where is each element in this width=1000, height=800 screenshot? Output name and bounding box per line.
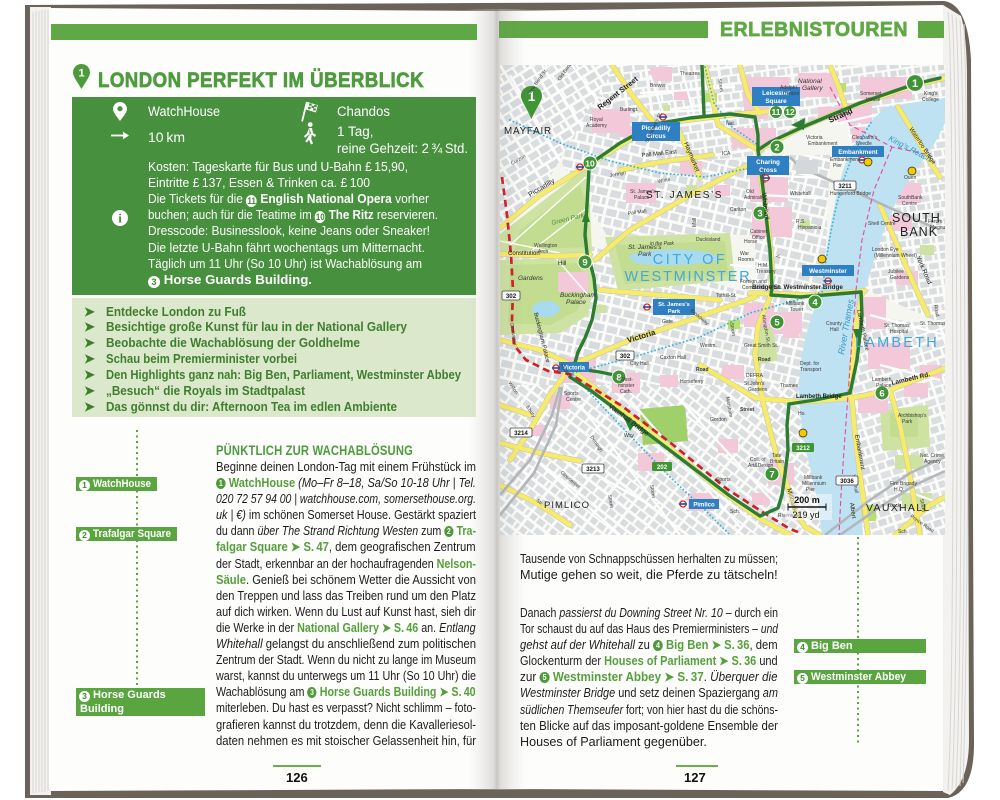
svg-text:Cath.: Cath.: [620, 389, 632, 395]
svg-text:Sports: Sports: [716, 477, 731, 483]
svg-text:Street: Street: [740, 407, 755, 413]
svg-text:Gardens: Gardens: [518, 275, 544, 282]
svg-text:Nat.: Nat.: [726, 121, 735, 127]
svg-text:Art&Design: Art&Design: [748, 463, 774, 469]
svg-text:Treasury: Treasury: [756, 269, 776, 275]
svg-text:3211: 3211: [838, 183, 852, 190]
svg-text:ST. JAMES’S: ST. JAMES’S: [646, 190, 723, 201]
svg-text:City Hall: City Hall: [630, 361, 649, 367]
svg-text:Gate: Gate: [662, 319, 673, 325]
svg-text:Brewer: Brewer: [650, 83, 666, 89]
svg-text:Tower: Tower: [790, 307, 804, 313]
svg-text:PIMLICO: PIMLICO: [544, 500, 590, 511]
svg-text:Carlton: Carlton: [730, 207, 746, 213]
svg-text:(Millennium Wheel): (Millennium Wheel): [874, 253, 917, 259]
svg-text:Savoy: Savoy: [838, 111, 852, 117]
svg-text:College: College: [922, 97, 939, 103]
svg-text:Charing: Charing: [756, 159, 780, 166]
svg-text:Square: Square: [765, 98, 787, 105]
svg-text:Great Smith St.: Great Smith St.: [744, 343, 778, 349]
svg-text:Pimlico: Pimlico: [693, 503, 715, 509]
svg-text:Gardens: Gardens: [748, 387, 768, 393]
svg-text:Way: Way: [624, 433, 634, 439]
svg-text:Rooms: Rooms: [738, 257, 754, 263]
svg-text:Ho.: Ho.: [798, 411, 806, 417]
svg-text:Academy: Academy: [586, 123, 607, 129]
svg-text:H.Q.: H.Q.: [894, 487, 904, 493]
svg-text:Magnum: Magnum: [930, 225, 945, 231]
svg-text:Ouen: Ouen: [904, 175, 916, 181]
svg-text:12: 12: [785, 107, 795, 117]
svg-text:Palace: Palace: [566, 299, 586, 306]
svg-text:Shell Centre: Shell Centre: [868, 221, 896, 227]
svg-text:Burlingt.: Burlingt.: [620, 107, 638, 113]
svg-text:Admiralty: Admiralty: [744, 195, 765, 201]
svg-text:St. James's: St. James's: [658, 302, 690, 308]
svg-text:National: National: [798, 78, 822, 85]
svg-text:Lambeth Bridge: Lambeth Bridge: [796, 394, 842, 400]
svg-text:Hall: Hall: [830, 327, 839, 333]
svg-text:200 m: 200 m: [794, 495, 820, 505]
svg-text:Sch.: Sch.: [898, 529, 908, 535]
svg-text:Office: Office: [752, 235, 765, 241]
svg-text:202: 202: [657, 464, 668, 471]
svg-text:Theatre: Theatre: [782, 91, 799, 97]
svg-text:Commonw. Office: Commonw. Office: [742, 285, 782, 291]
svg-text:219 yd: 219 yd: [792, 510, 819, 520]
svg-text:Hispaniola: Hispaniola: [798, 225, 822, 231]
svg-text:2: 2: [774, 142, 779, 153]
svg-text:Embankment: Embankment: [808, 141, 838, 147]
svg-text:Black: Black: [888, 503, 901, 509]
svg-text:i: i: [118, 211, 122, 226]
svg-text:10: 10: [585, 158, 595, 168]
svg-text:Whitehall: Whitehall: [790, 191, 811, 197]
svg-text:Duckisland: Duckisland: [696, 237, 721, 243]
svg-text:9: 9: [582, 257, 587, 268]
svg-text:DEFRA: DEFRA: [746, 373, 764, 379]
svg-text:3036: 3036: [840, 478, 854, 485]
svg-text:Tothill-St.: Tothill-St.: [716, 293, 737, 299]
svg-text:Horseferry: Horseferry: [680, 379, 704, 385]
svg-text:Palace: Palace: [876, 383, 892, 389]
svg-text:3214: 3214: [514, 430, 528, 437]
svg-text:Palace: Palace: [634, 195, 650, 201]
svg-text:Park: Park: [668, 309, 681, 315]
svg-text:Park: Park: [902, 419, 913, 425]
svg-text:Transport: Transport: [800, 367, 822, 373]
svg-text:11: 11: [772, 107, 781, 117]
svg-text:Constitution: Constitution: [508, 251, 540, 257]
svg-text:Gallery: Gallery: [802, 85, 823, 92]
svg-text:Caxton Hall: Caxton Hall: [660, 355, 686, 361]
svg-text:in the Park: in the Park: [650, 241, 674, 247]
svg-text:7: 7: [769, 469, 774, 480]
svg-text:3212: 3212: [796, 445, 810, 452]
svg-text:Road: Road: [696, 367, 709, 373]
svg-text:Arch: Arch: [538, 249, 549, 255]
svg-text:Road: Road: [758, 357, 771, 363]
svg-text:4: 4: [812, 297, 818, 308]
svg-text:Agency: Agency: [924, 459, 941, 465]
svg-text:Centre: Centre: [566, 397, 581, 403]
svg-text:Buckingham: Buckingham: [560, 292, 596, 299]
svg-text:1: 1: [912, 78, 918, 90]
svg-text:Pier: Pier: [833, 163, 842, 169]
svg-text:Sch.: Sch.: [730, 509, 740, 515]
svg-text:ICA: ICA: [722, 151, 731, 157]
svg-text:Embankment: Embankment: [838, 149, 878, 156]
svg-text:Gardens: Gardens: [890, 275, 910, 281]
svg-text:5: 5: [774, 317, 780, 328]
svg-text:Needle: Needle: [856, 141, 872, 147]
svg-text:WESTMINSTER: WESTMINSTER: [625, 269, 752, 285]
svg-text:Park: Park: [638, 251, 652, 258]
svg-text:Hospital: Hospital: [890, 329, 908, 335]
svg-text:MAYFAIR: MAYFAIR: [504, 126, 552, 137]
svg-text:Hungerford Bridge: Hungerford Bridge: [830, 191, 871, 197]
svg-text:1: 1: [78, 68, 84, 80]
svg-text:CITY OF: CITY OF: [653, 252, 727, 268]
svg-text:Westminster: Westminster: [809, 268, 847, 275]
svg-text:Theatres: Theatres: [680, 71, 700, 77]
svg-text:Thames: Thames: [780, 383, 799, 389]
svg-text:Centre: Centre: [902, 201, 917, 207]
svg-text:Hill: Hill: [558, 261, 566, 267]
svg-text:St. Thomas': St. Thomas': [920, 321, 945, 327]
svg-text:302: 302: [506, 293, 517, 300]
svg-text:302: 302: [620, 353, 631, 360]
svg-text:House: House: [866, 97, 881, 103]
svg-text:3213: 3213: [586, 466, 600, 473]
svg-text:Pier: Pier: [806, 487, 815, 493]
svg-text:Mall: Mall: [692, 218, 698, 227]
svg-text:6: 6: [879, 388, 884, 399]
svg-text:Westm.: Westm.: [700, 343, 717, 349]
svg-text:Gordon: Gordon: [710, 417, 727, 423]
